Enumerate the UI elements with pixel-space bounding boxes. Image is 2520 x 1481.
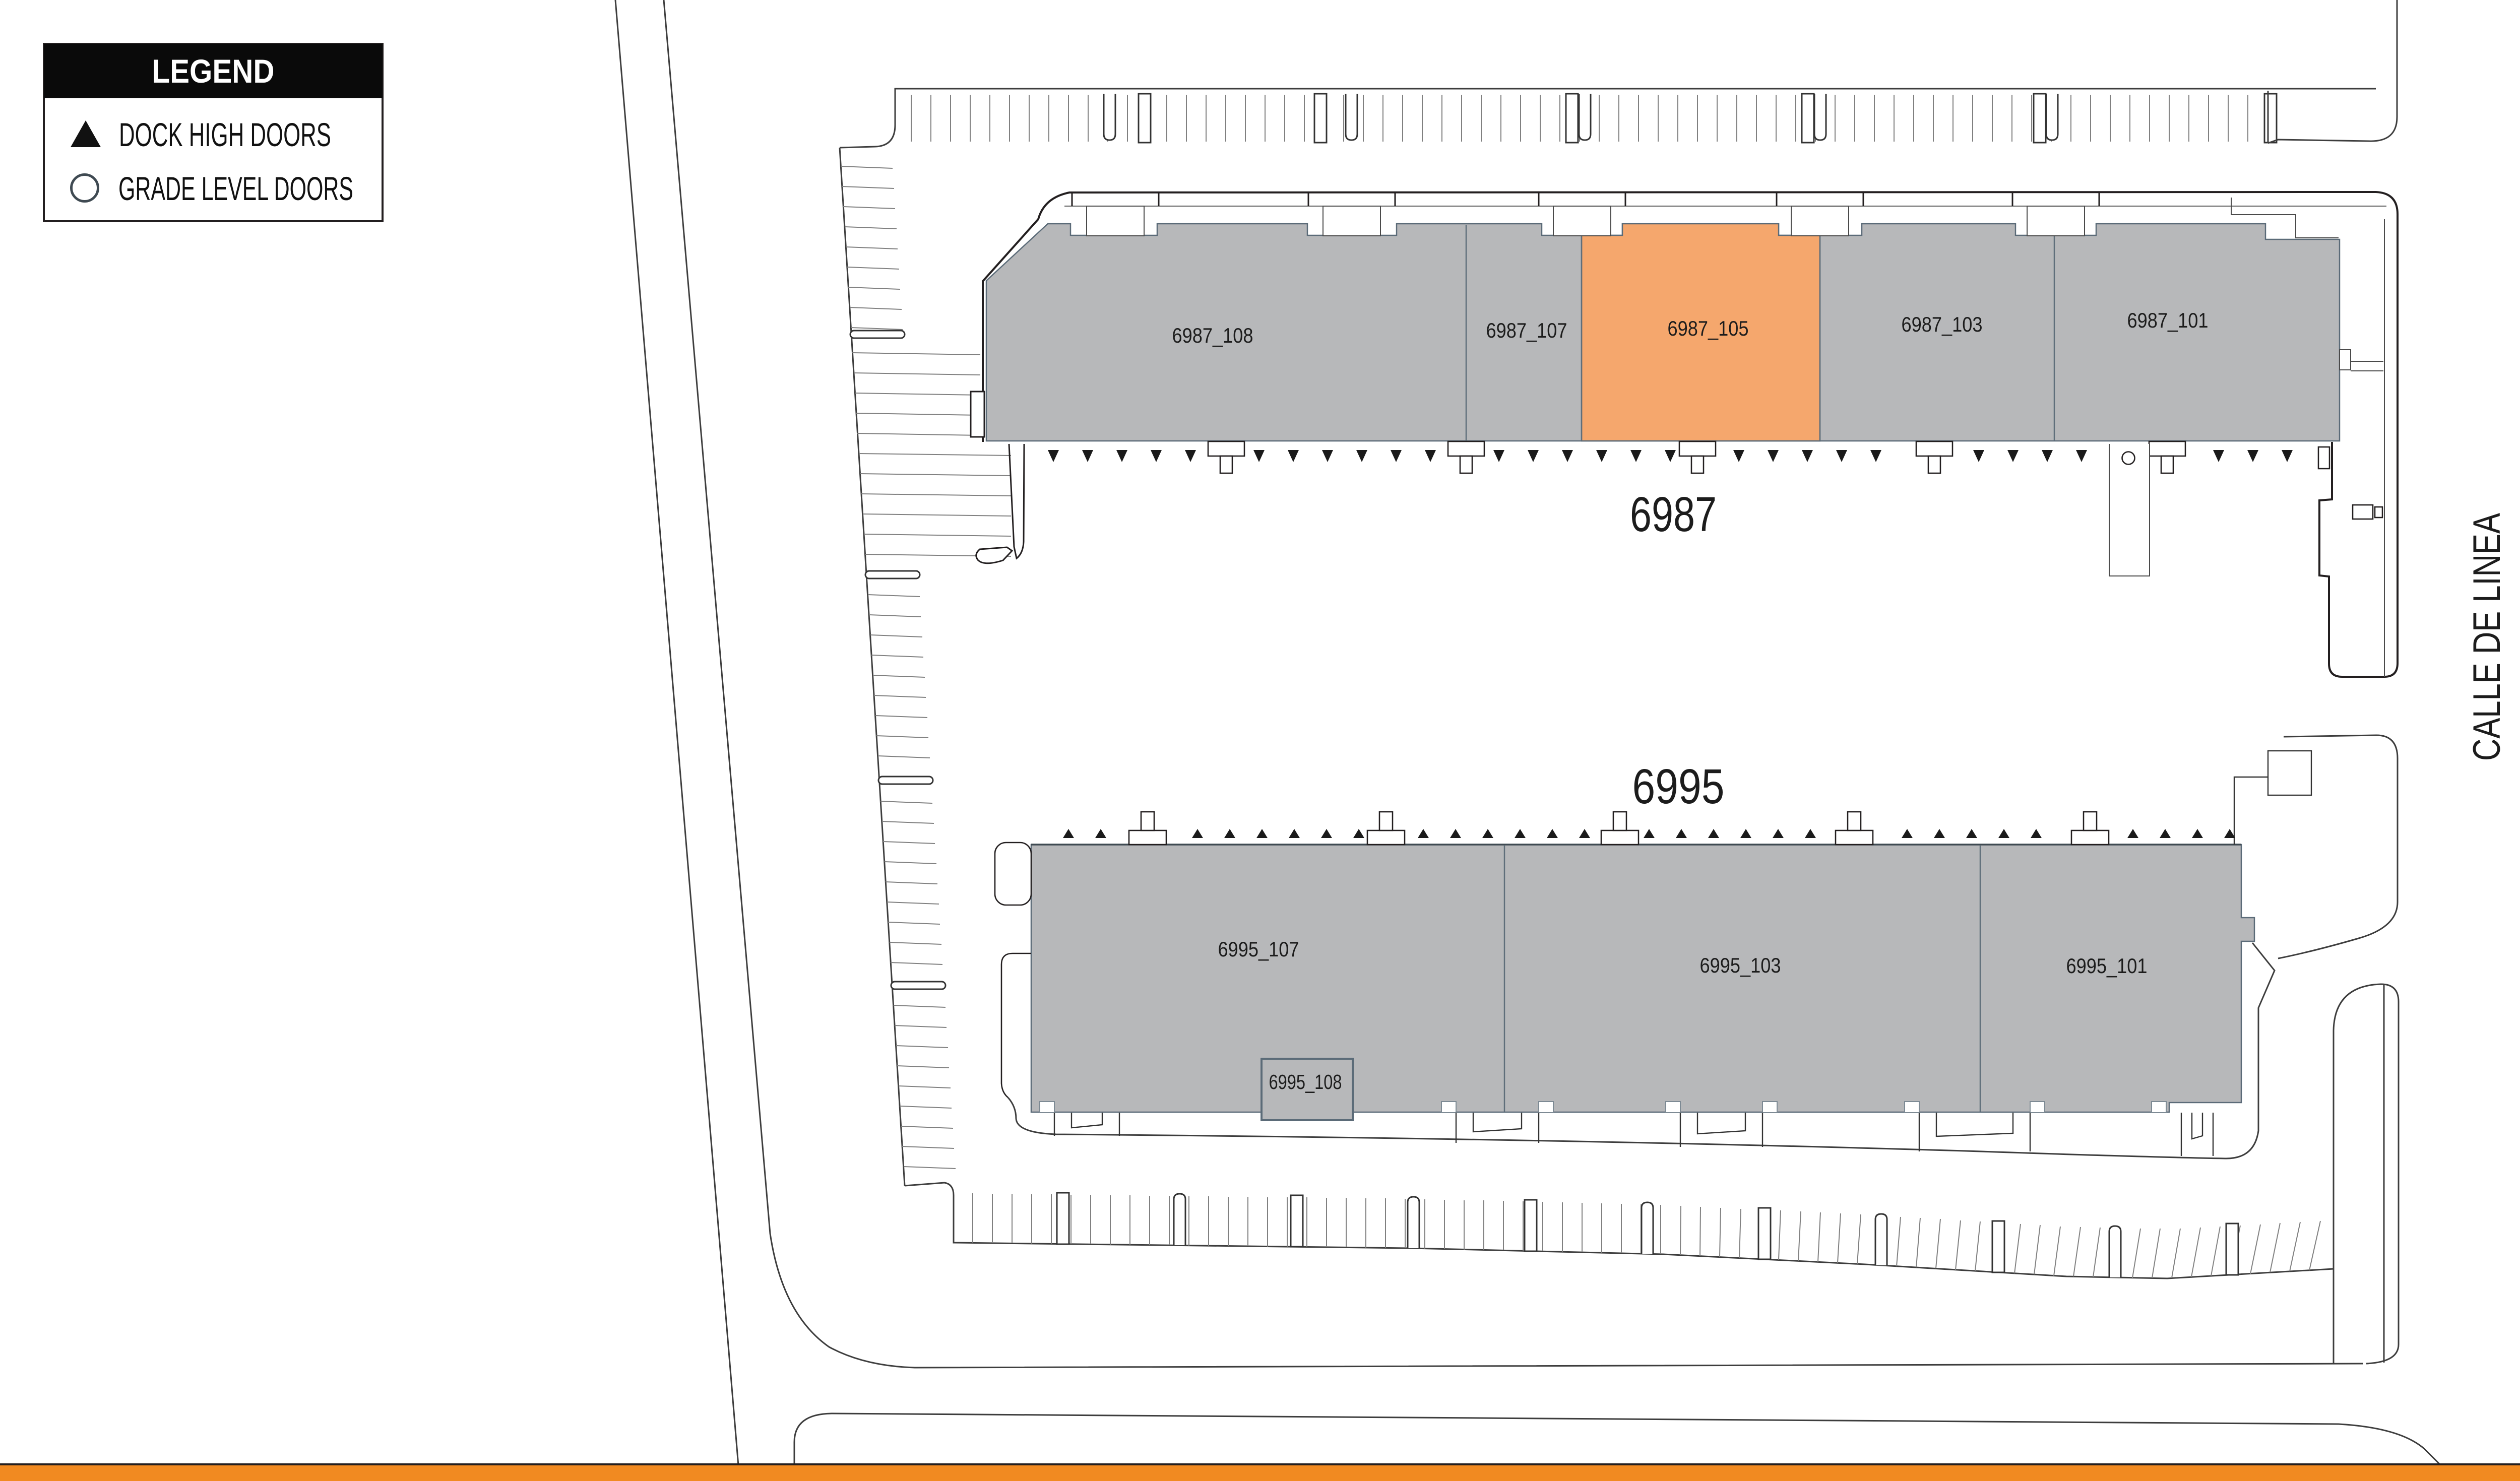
svg-text:6987: 6987 <box>1630 487 1717 542</box>
svg-text:6995_108: 6995_108 <box>1269 1070 1342 1093</box>
svg-text:6987_105: 6987_105 <box>1668 316 1749 340</box>
svg-text:LEGEND: LEGEND <box>152 52 275 90</box>
svg-text:DOCK HIGH DOORS: DOCK HIGH DOORS <box>119 116 331 153</box>
svg-text:6995_101: 6995_101 <box>2066 954 2148 978</box>
svg-text:CALLE DE LINEA: CALLE DE LINEA <box>2466 513 2508 761</box>
svg-text:6995_107: 6995_107 <box>1218 937 1299 961</box>
svg-text:6995: 6995 <box>1632 759 1725 814</box>
svg-text:6987_103: 6987_103 <box>1902 312 1983 336</box>
svg-text:GRADE LEVEL DOORS: GRADE LEVEL DOORS <box>118 170 353 207</box>
svg-text:6987_108: 6987_108 <box>1172 324 1253 347</box>
svg-text:6995_103: 6995_103 <box>1700 953 1781 977</box>
svg-text:6987_101: 6987_101 <box>2127 308 2209 332</box>
svg-text:6987_107: 6987_107 <box>1486 318 1567 342</box>
